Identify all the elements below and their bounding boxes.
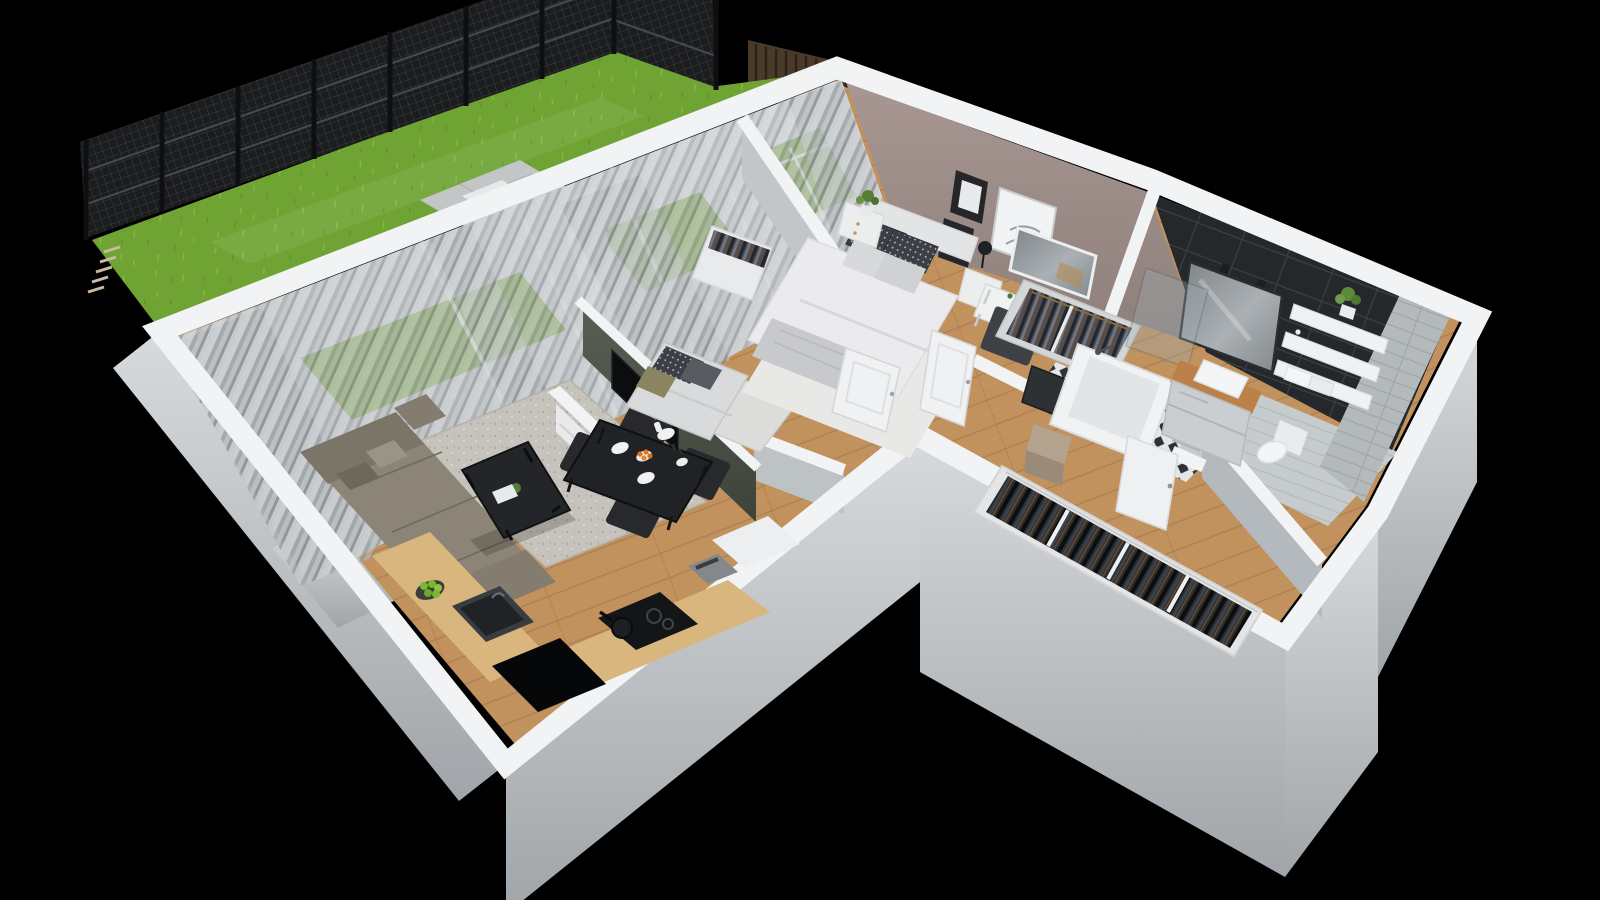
bath-candle	[1295, 329, 1300, 334]
nightstand-left-knob-1	[856, 222, 860, 226]
bath-plant-leaf-3	[1351, 295, 1361, 305]
orange-4	[647, 453, 652, 458]
bedroom-plant-leaf-2	[856, 196, 864, 204]
bathroom-door-handle	[1168, 484, 1173, 489]
door-2-handle	[966, 380, 970, 384]
apple-4	[424, 589, 432, 597]
bath-plant-leaf-2	[1335, 294, 1345, 304]
orange-2	[643, 449, 648, 454]
orange-3	[641, 455, 646, 460]
door-1-handle	[890, 392, 894, 396]
orange-1	[637, 451, 642, 456]
table-lamp	[978, 241, 992, 255]
floorplan-stage	[0, 0, 1600, 900]
bedroom-plant-leaf-3	[871, 197, 879, 205]
frying-pan	[612, 618, 632, 638]
floorplan-render	[0, 0, 1600, 900]
apple-5	[432, 590, 440, 598]
apple-1	[420, 582, 428, 590]
nightstand-left-knob-2	[853, 231, 857, 235]
vanity-plant	[1007, 293, 1012, 298]
